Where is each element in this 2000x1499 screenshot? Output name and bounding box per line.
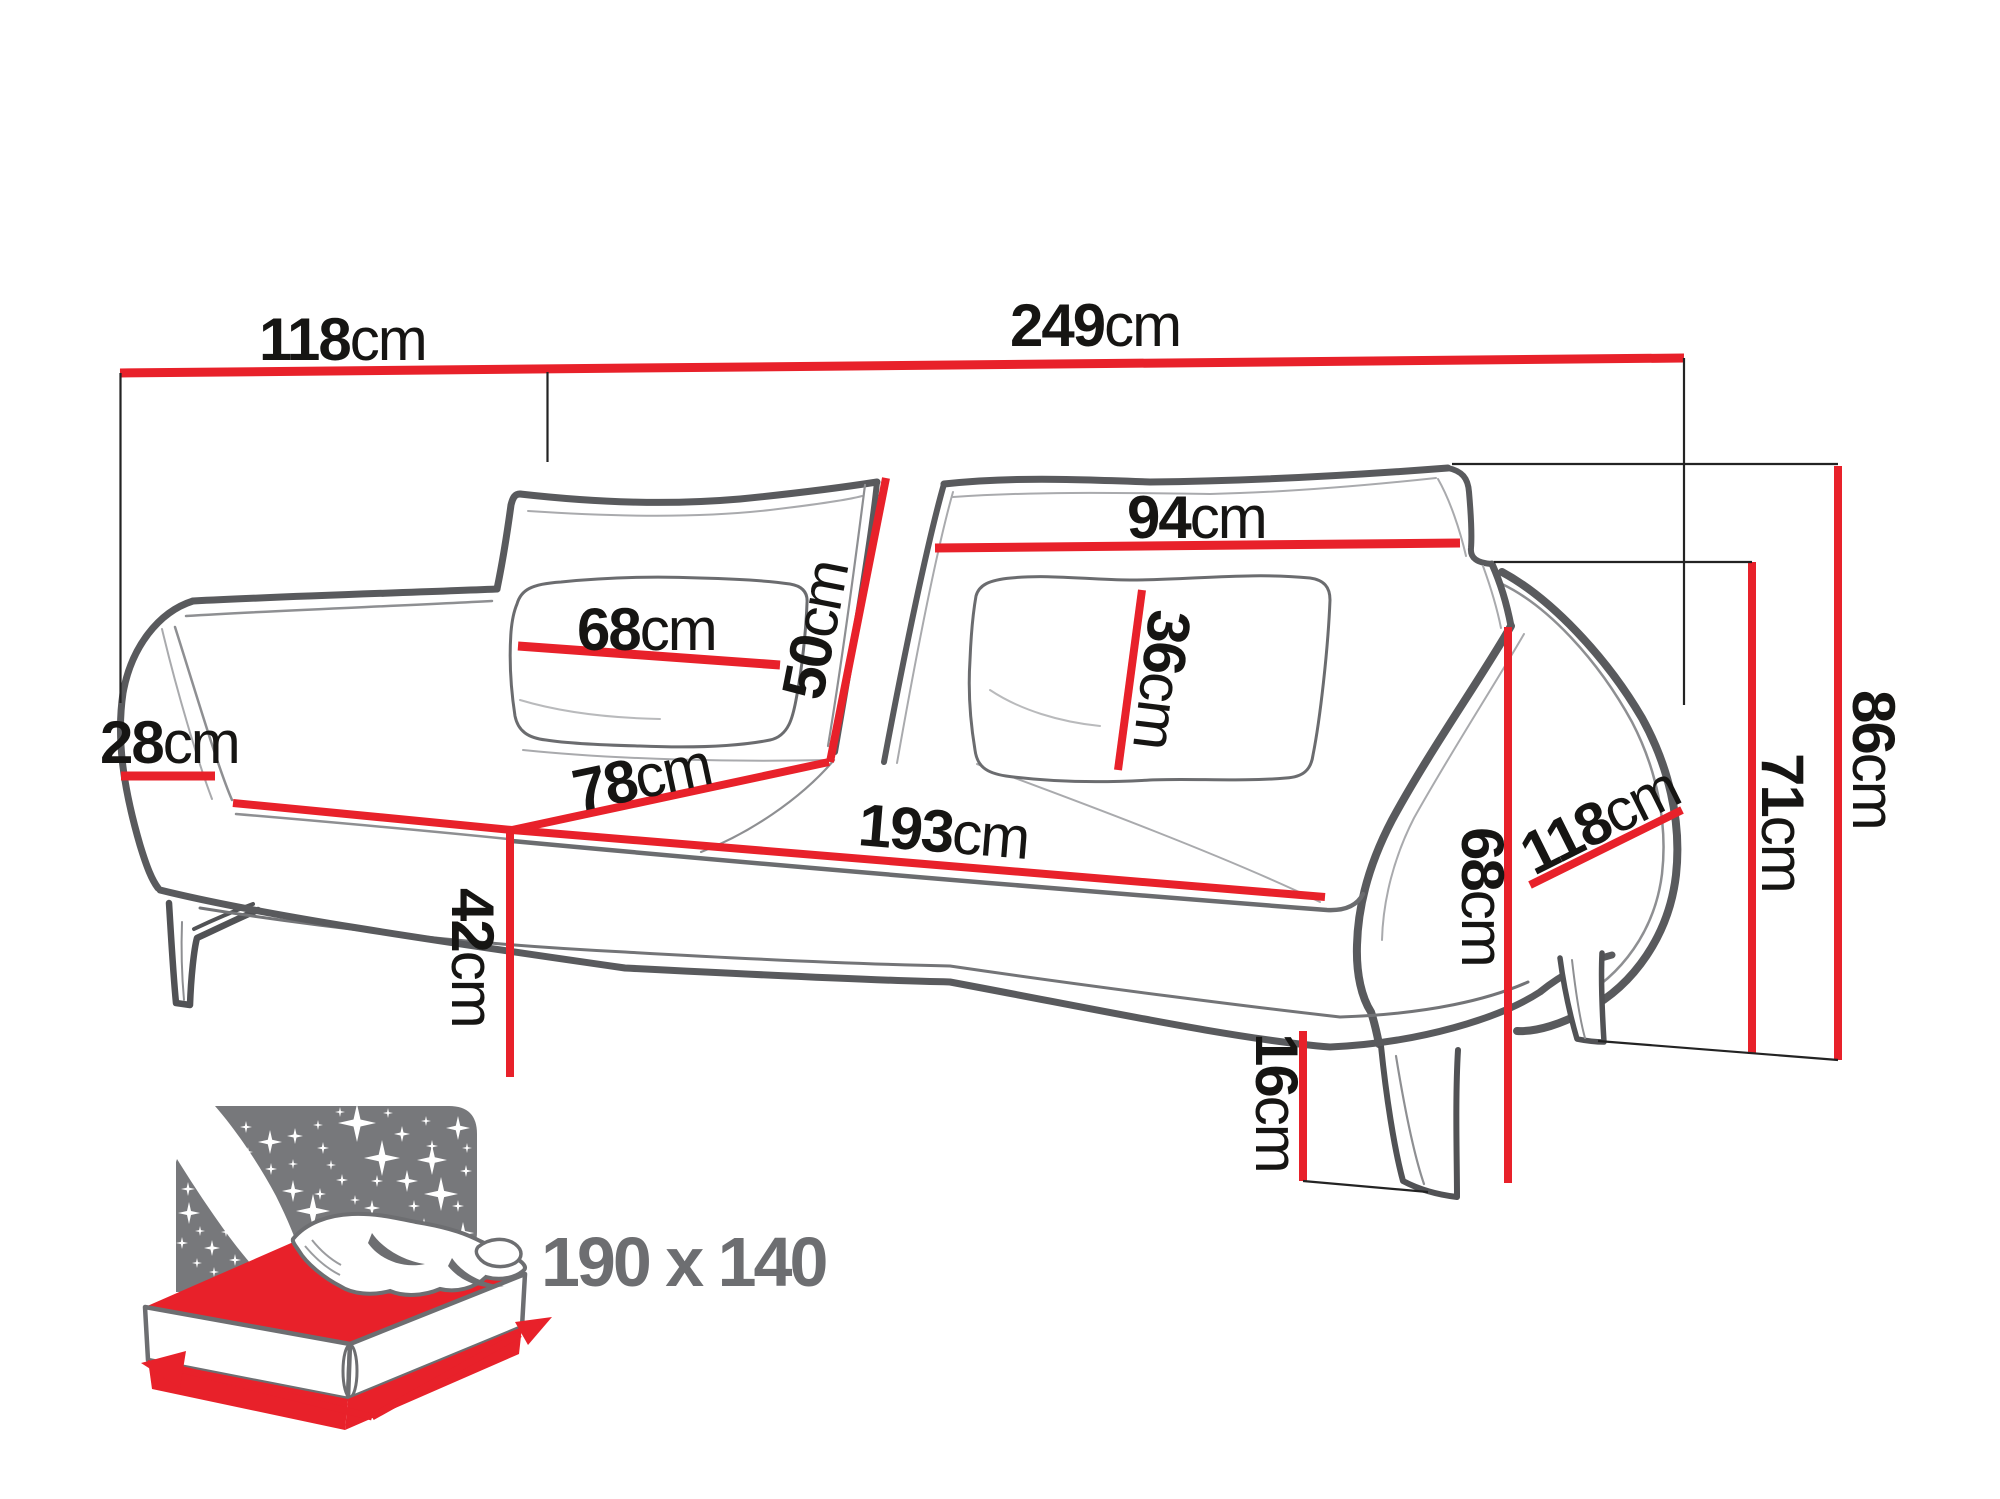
svg-text:190 x 140: 190 x 140	[541, 1223, 826, 1301]
svg-text:68cm: 68cm	[577, 596, 716, 663]
svg-text:249cm: 249cm	[1010, 292, 1180, 359]
svg-text:28cm: 28cm	[100, 709, 239, 776]
svg-text:42cm: 42cm	[439, 888, 506, 1027]
svg-text:71cm: 71cm	[1749, 753, 1816, 892]
svg-text:68cm: 68cm	[1449, 827, 1516, 966]
svg-text:94cm: 94cm	[1127, 484, 1266, 551]
svg-text:118cm: 118cm	[259, 306, 426, 373]
svg-text:16cm: 16cm	[1243, 1033, 1310, 1172]
svg-text:86cm: 86cm	[1840, 690, 1907, 829]
svg-text:193cm: 193cm	[856, 791, 1031, 872]
